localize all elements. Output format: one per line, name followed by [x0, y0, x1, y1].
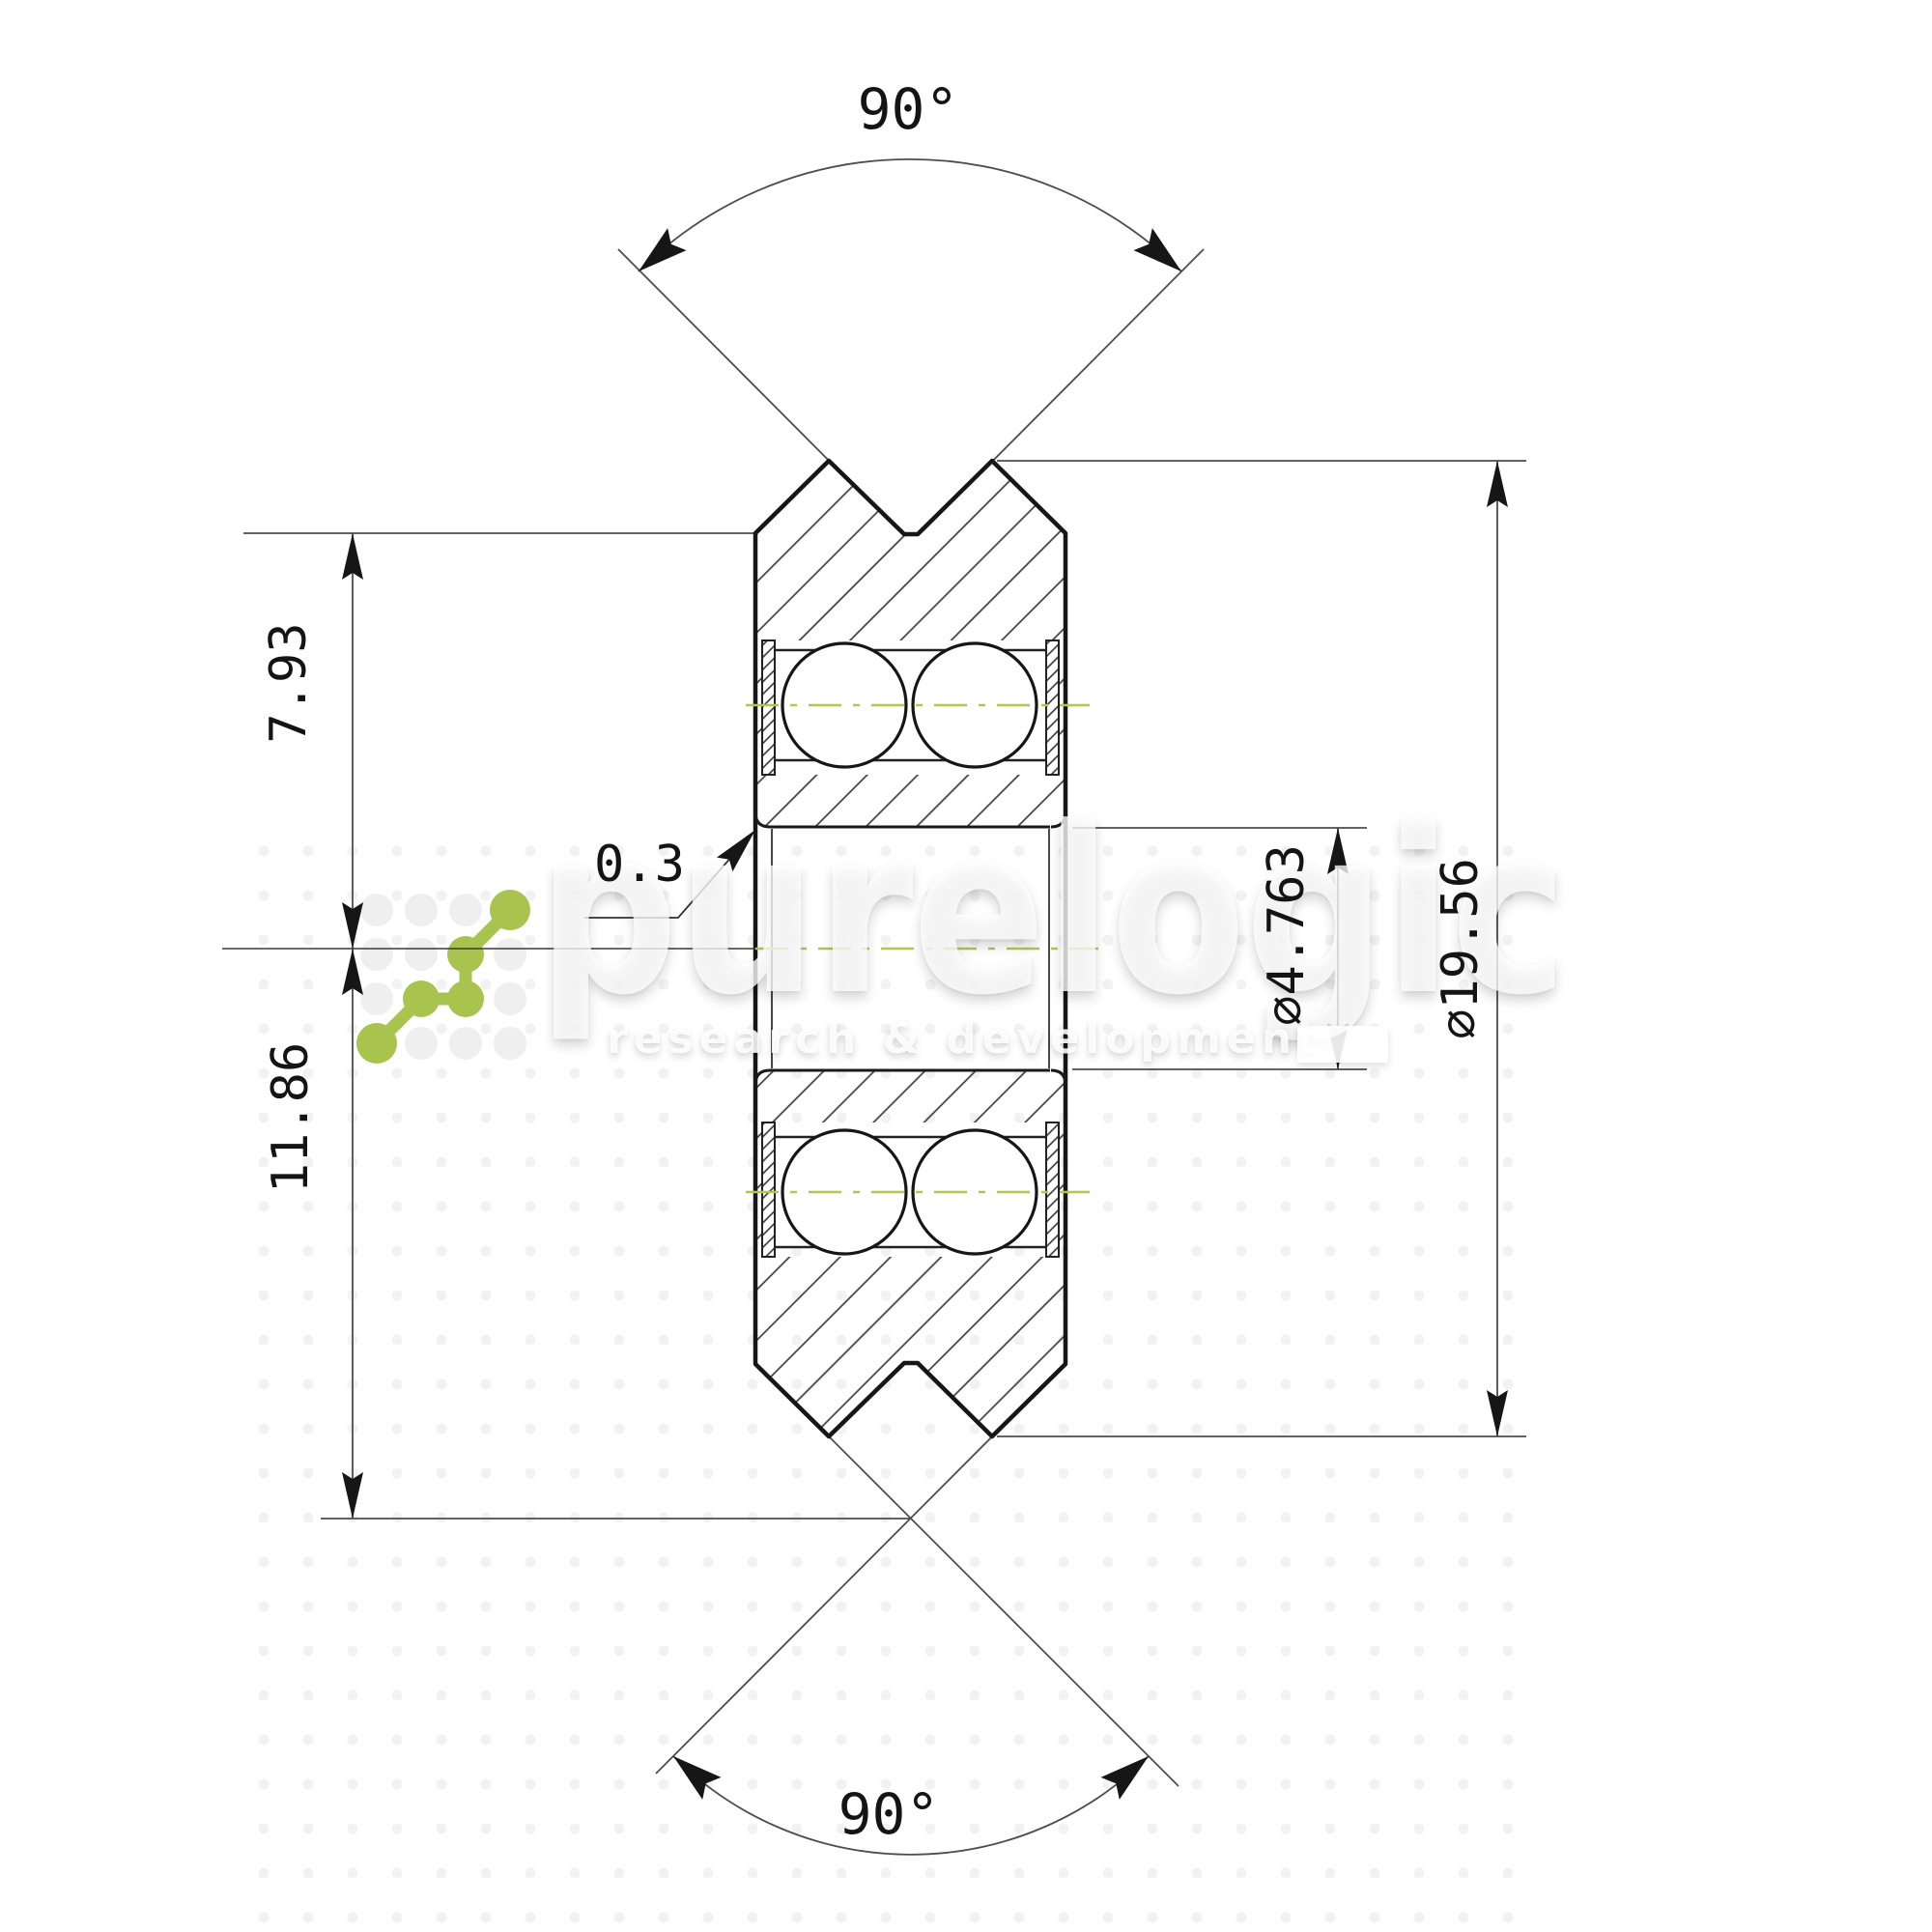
dim-bore-diameter: ⌀4.763: [1256, 810, 1318, 1061]
top-angle-arc: [639, 159, 1181, 271]
watermark-tagline: research & development: [607, 1014, 1323, 1064]
dim-outer-diameter: ⌀19.56: [1430, 823, 1492, 1074]
dim-top-groove-angle: 90°: [782, 78, 1034, 140]
dim-edge-radius: 0.3: [514, 834, 765, 895]
drawing-sheet: purelogic research & development 90° 90°…: [0, 0, 1932, 1932]
dim-axis-to-v-apex: 11.86: [260, 992, 322, 1243]
watermark-brand: purelogic: [537, 798, 1566, 1028]
dim-bottom-groove-angle: 90°: [763, 1783, 1014, 1845]
watermark-logo-mark: [356, 890, 530, 1064]
dim-rim-to-axis: 7.93: [258, 557, 320, 809]
